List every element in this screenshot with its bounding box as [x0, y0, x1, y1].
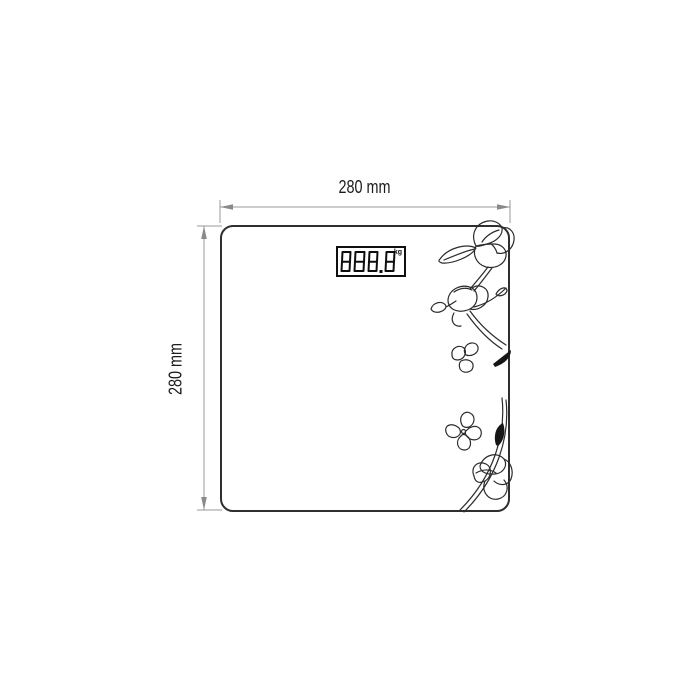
lcd-digits: [340, 248, 395, 275]
lcd-decimal-point: [379, 270, 382, 273]
floral-decoration-icon: [420, 212, 520, 514]
height-dimension-text: 280 mm: [166, 343, 187, 395]
lcd-digit-8: [340, 251, 351, 272]
product-dimension-diagram: 280 mm 280 mm kg: [0, 0, 700, 700]
lcd-digit-8: [367, 251, 378, 272]
lcd-digit-8: [354, 251, 365, 272]
lcd-display: kg: [336, 246, 406, 277]
height-dimension-label: 280 mm: [166, 336, 187, 401]
lcd-unit-label: kg: [394, 249, 402, 256]
